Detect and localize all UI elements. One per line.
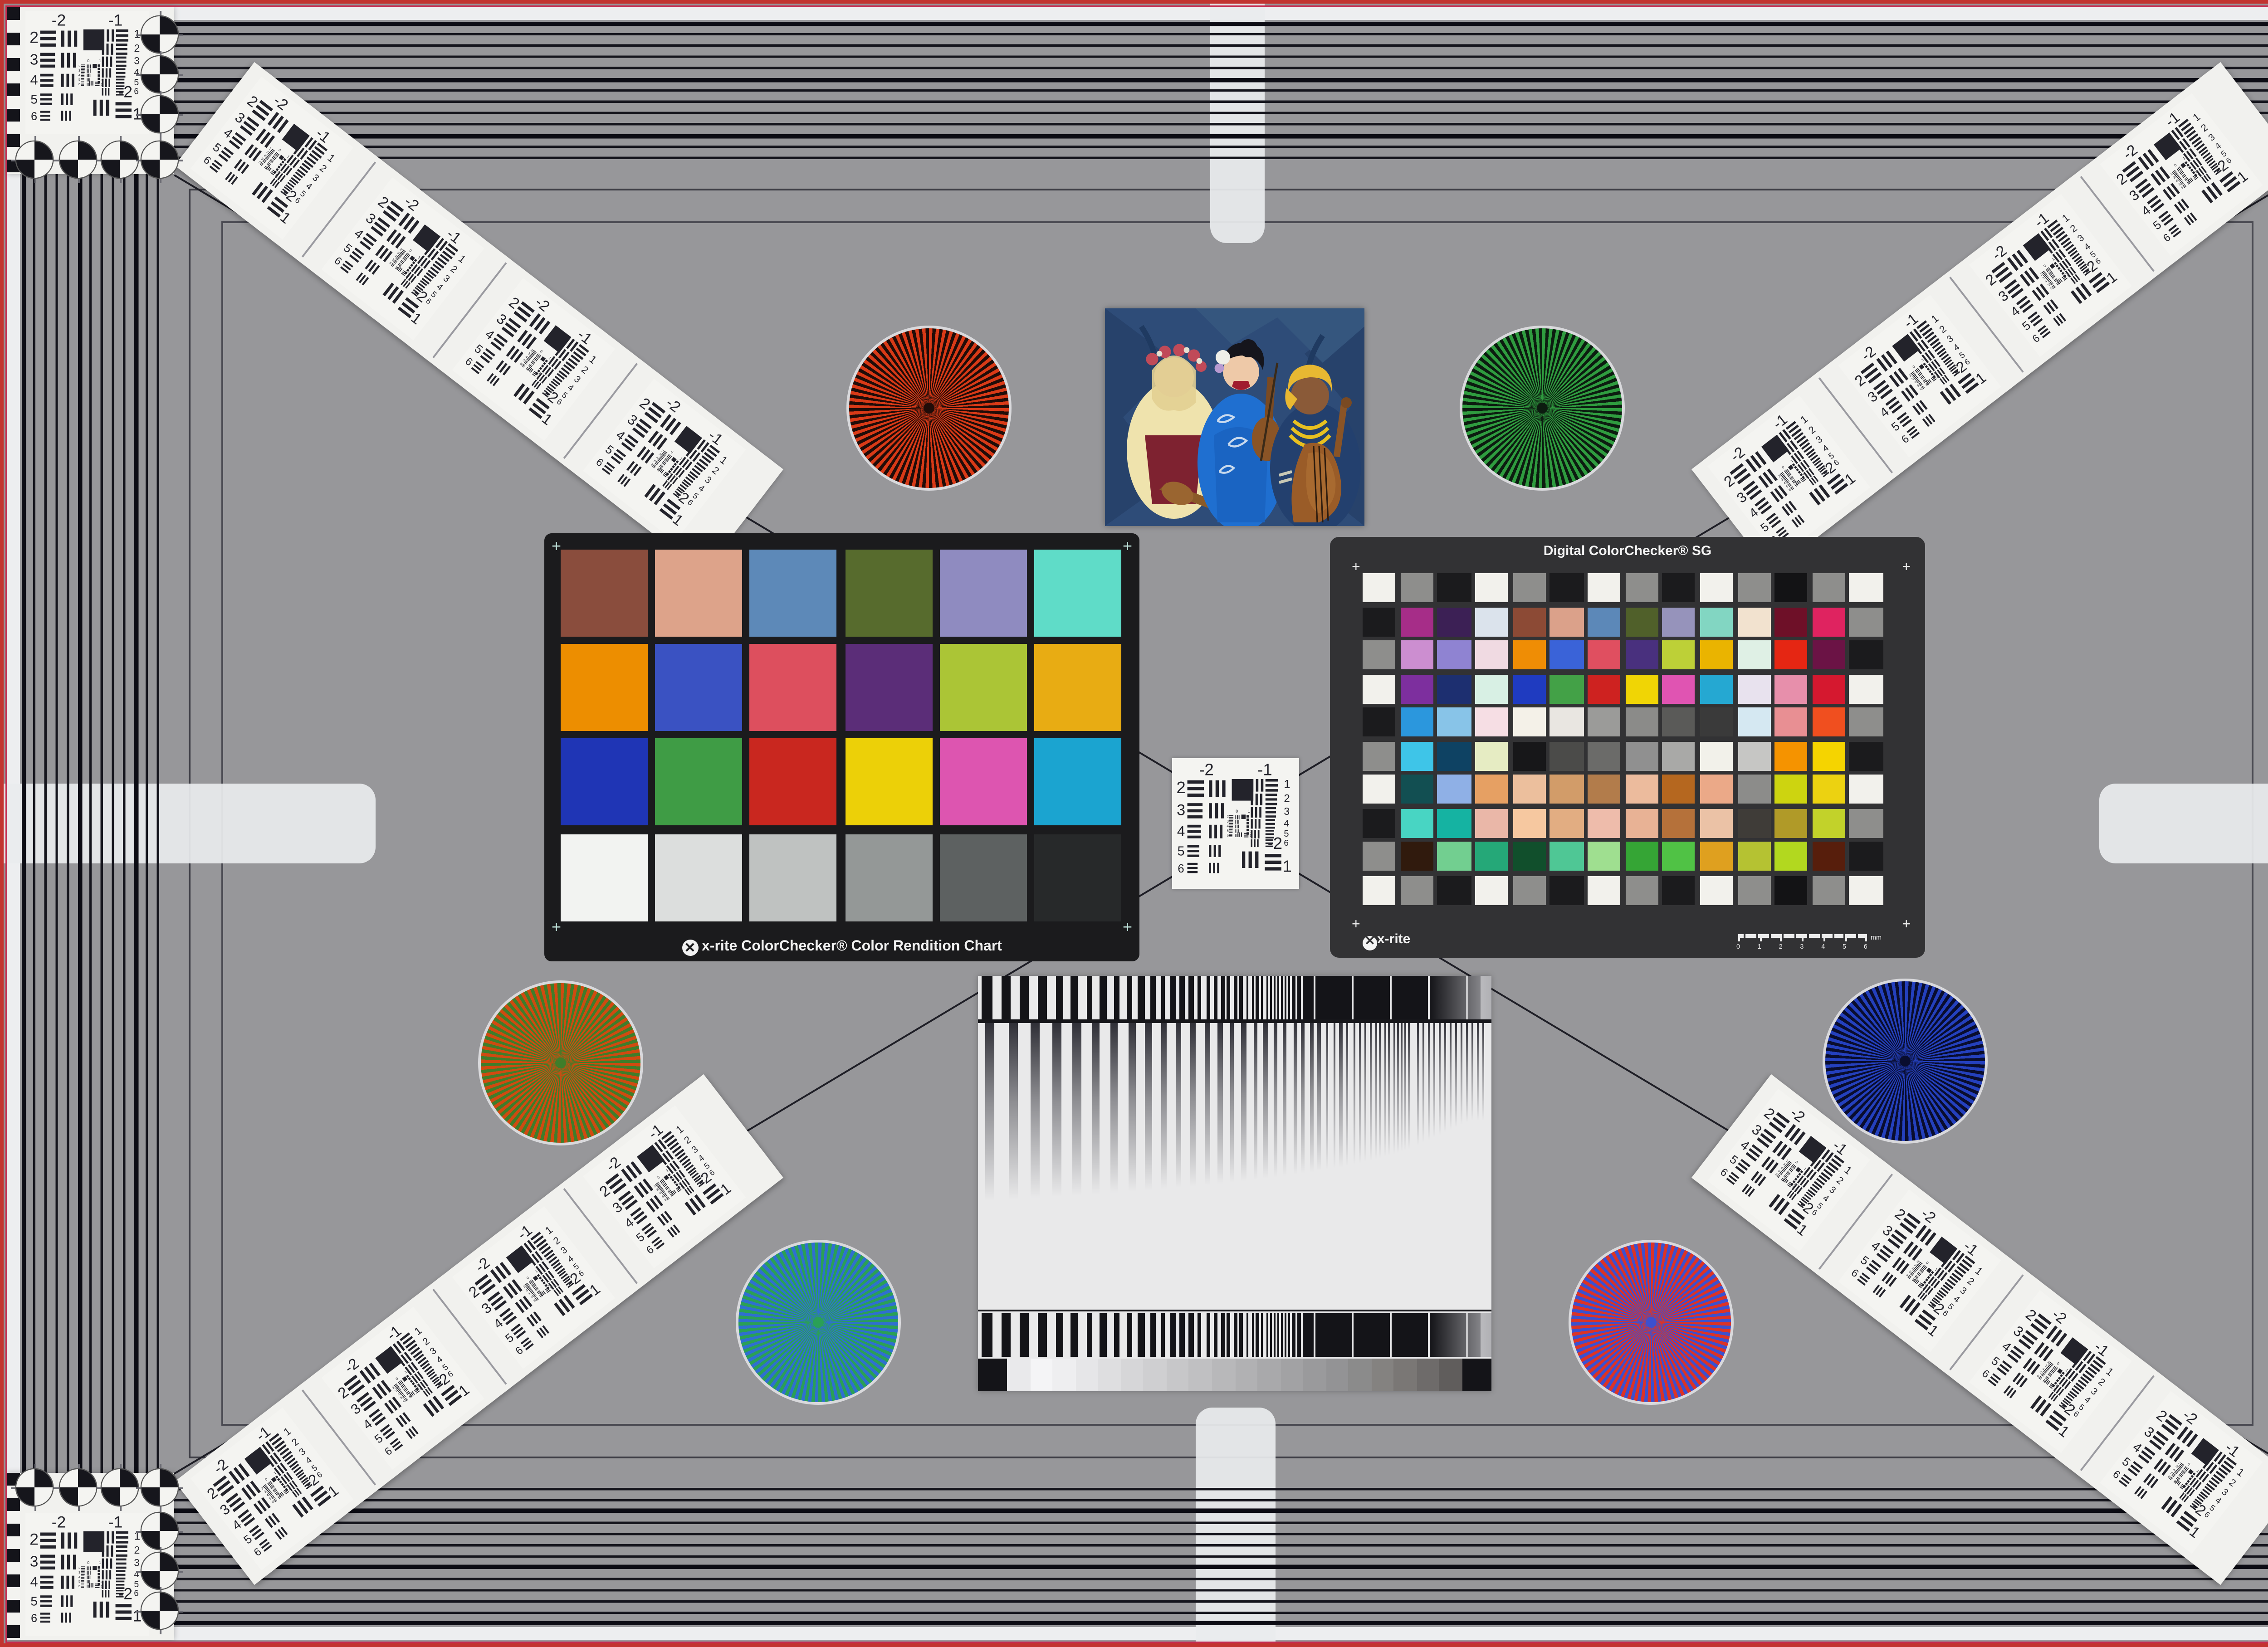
svg-text:3: 3 <box>30 51 38 68</box>
sweep-bar <box>1397 1313 1398 1357</box>
colorchecker-patch <box>845 550 932 637</box>
svg-text:0: 0 <box>1925 1261 1929 1265</box>
svg-text:2: 2 <box>682 1134 693 1146</box>
sg-patch <box>1588 707 1621 737</box>
sg-patch <box>1475 674 1508 703</box>
sweep-bar <box>1368 976 1369 1019</box>
sweep-bar <box>1393 976 1394 1019</box>
sweep-bar <box>1356 1313 1358 1357</box>
sweep-bar <box>1379 976 1381 1019</box>
sweep-bar <box>1126 976 1132 1019</box>
svg-text:1: 1 <box>456 252 468 265</box>
svg-text:3: 3 <box>703 474 714 486</box>
ruler-tick <box>1783 934 1784 939</box>
sweep-bar <box>1318 976 1320 1019</box>
trumpet-line <box>1009 1023 1018 1310</box>
sweep-bar <box>1309 1313 1310 1357</box>
sweep-bar <box>1375 976 1377 1019</box>
colorchecker-patch <box>939 739 1026 826</box>
svg-text:-2: -2 <box>2049 1306 2070 1327</box>
trumpet-line <box>1434 1023 1435 1310</box>
center-usaf-target: -2-123456123456-21012345601 <box>1172 758 1299 889</box>
trumpet-line <box>1442 1023 1443 1310</box>
ruler-tick <box>1836 934 1837 939</box>
sweep-bar <box>1086 976 1093 1019</box>
svg-text:6: 6 <box>1718 1166 1730 1179</box>
sg-patch <box>1363 707 1396 737</box>
sg-patch <box>1475 875 1508 905</box>
sweep-bar <box>1315 1313 1316 1357</box>
sweep-bar <box>1180 1313 1185 1357</box>
ruler-tick <box>1794 934 1794 939</box>
sweep-bar <box>1240 976 1243 1019</box>
trumpet-line <box>1274 1023 1278 1310</box>
edge-checker-strip <box>7 7 20 174</box>
sweep-bar <box>1038 1313 1047 1357</box>
sweep-bar <box>1171 976 1176 1019</box>
svg-text:6: 6 <box>1919 387 1922 391</box>
svg-text:-1: -1 <box>313 125 333 146</box>
colorchecker-patch <box>561 644 648 731</box>
ruler-tick <box>1861 934 1862 939</box>
ruler-tick <box>1844 934 1845 941</box>
svg-text:2: 2 <box>551 1234 562 1247</box>
sweep-bar <box>1305 1313 1306 1357</box>
sg-patch <box>1700 707 1733 737</box>
sweep-bar <box>1349 976 1350 1019</box>
svg-text:6: 6 <box>1774 1173 1778 1177</box>
trumpet-line <box>1472 1023 1473 1310</box>
svg-text:0: 0 <box>1236 809 1238 814</box>
colorchecker-patch <box>655 833 743 921</box>
trumpet-line <box>1437 1023 1438 1310</box>
sg-patch <box>1850 775 1883 804</box>
ruler-tick <box>1749 934 1750 939</box>
svg-text:5: 5 <box>1227 828 1229 833</box>
edge-checker-strip <box>7 1473 20 1640</box>
svg-text:-1: -1 <box>2091 1339 2112 1360</box>
fiducial-quadrant-circle <box>142 1513 178 1549</box>
ruler-unit: mm <box>1871 934 1882 941</box>
svg-text:4: 4 <box>78 73 81 77</box>
svg-text:6: 6 <box>1227 833 1229 838</box>
sg-patch <box>1512 875 1545 905</box>
ruler-tick <box>1823 934 1824 941</box>
ruler-tick <box>1806 934 1807 939</box>
svg-text:3: 3 <box>310 172 321 184</box>
svg-text:2: 2 <box>134 42 140 54</box>
svg-text:1: 1 <box>1283 857 1292 875</box>
trumpet-line <box>1414 1023 1416 1310</box>
sg-patch <box>1550 674 1583 703</box>
sweep-bar <box>1356 976 1358 1019</box>
svg-text:1: 1 <box>1798 413 1810 426</box>
right-center-bar <box>2099 784 2268 863</box>
trumpet-line <box>1161 1023 1167 1310</box>
svg-text:-1: -1 <box>705 427 726 448</box>
svg-text:3: 3 <box>30 1553 38 1570</box>
sweep-bar <box>1385 1313 1386 1357</box>
svg-text:4: 4 <box>134 67 139 78</box>
sweep-bar <box>1354 976 1356 1019</box>
svg-text:2: 2 <box>1834 1174 1846 1187</box>
sweep-bar <box>1270 976 1272 1019</box>
svg-text:5: 5 <box>2019 318 2033 333</box>
sweep-bar <box>1335 1313 1337 1357</box>
sweep-bar <box>1416 976 1417 1019</box>
sg-patch <box>1625 607 1658 636</box>
ruler-tick <box>1760 934 1760 941</box>
sg-patch <box>1437 707 1471 737</box>
sg-patch <box>1512 607 1545 636</box>
svg-text:2: 2 <box>449 263 460 275</box>
sweep-bar <box>1086 1313 1093 1357</box>
sweep-bar <box>1408 976 1409 1019</box>
sweep-bar <box>1305 976 1306 1019</box>
svg-text:-2: -2 <box>342 1355 362 1376</box>
svg-text:1: 1 <box>281 1425 293 1438</box>
svg-text:2: 2 <box>318 162 329 175</box>
svg-text:1: 1 <box>1248 809 1250 814</box>
svg-text:4: 4 <box>491 1316 506 1332</box>
sg-patch <box>1363 573 1396 603</box>
sweep-bar <box>1160 1313 1165 1357</box>
corner-usaf-target: -2-123456123456-21012345601 <box>25 1513 149 1636</box>
sweep-bar <box>1375 1313 1377 1357</box>
svg-text:2: 2 <box>78 64 80 68</box>
svg-text:6: 6 <box>78 1584 80 1588</box>
svg-text:3: 3 <box>1958 1285 1969 1296</box>
sweep-bar <box>1378 1313 1379 1357</box>
ruler-tick <box>1851 934 1852 939</box>
sweep-bar <box>1274 1313 1276 1357</box>
sweep-bar <box>1359 1313 1360 1357</box>
sweep-bar <box>1002 1313 1011 1357</box>
ruler-number: 5 <box>1843 943 1846 950</box>
grayscale-step <box>1280 1359 1303 1391</box>
sg-patch <box>1700 775 1733 804</box>
sg-patch <box>1737 707 1770 737</box>
siemens-star-green-black <box>1462 328 1622 488</box>
sg-patch <box>1475 640 1508 670</box>
sweep-bar <box>1278 1313 1280 1357</box>
sg-patch <box>1737 640 1770 670</box>
sweep-bar <box>1320 1313 1322 1357</box>
svg-text:3: 3 <box>1227 819 1229 823</box>
ruler-tick <box>1770 934 1771 939</box>
svg-text:4: 4 <box>1177 823 1185 839</box>
sg-patch <box>1662 573 1696 603</box>
sweep-bar <box>1150 1313 1155 1357</box>
sweep-bar <box>1021 976 1030 1019</box>
sg-patch <box>1812 674 1845 703</box>
sweep-bar <box>1368 1313 1369 1357</box>
svg-text:1: 1 <box>587 353 599 366</box>
colorchecker-patch <box>1034 833 1121 921</box>
sg-patch <box>1363 875 1396 905</box>
sg-patch <box>1775 640 1808 670</box>
sweep-bar <box>1389 1313 1390 1357</box>
svg-text:3: 3 <box>479 1300 494 1317</box>
svg-text:5: 5 <box>2120 1454 2133 1469</box>
svg-text:0: 0 <box>2056 1361 2060 1366</box>
grayscale-step <box>1235 1359 1258 1391</box>
sweep-bar <box>1421 976 1422 1019</box>
svg-text:-1: -1 <box>108 12 122 29</box>
sg-patch <box>1363 842 1396 871</box>
sweep-bar <box>1417 1313 1419 1357</box>
svg-text:2: 2 <box>420 1335 431 1347</box>
grayscale-step <box>1303 1359 1326 1391</box>
svg-text:6: 6 <box>1788 488 1792 492</box>
sg-patch <box>1550 842 1583 871</box>
sg-patch <box>1737 607 1770 636</box>
sweep-bar <box>1227 1313 1231 1357</box>
sweep-bar <box>1394 1313 1396 1357</box>
sweep-bar <box>1328 976 1329 1019</box>
svg-text:2: 2 <box>710 464 721 477</box>
svg-text:5: 5 <box>603 442 616 457</box>
sweep-bar <box>1391 976 1392 1019</box>
colorchecker-patch <box>1034 550 1121 637</box>
svg-text:-2: -2 <box>663 395 684 416</box>
svg-text:-1: -1 <box>1257 760 1272 779</box>
trumpet-line <box>1428 1023 1430 1310</box>
trumpet-line <box>1242 1023 1246 1310</box>
sweep-bar <box>1171 1313 1176 1357</box>
svg-text:3: 3 <box>78 1570 80 1574</box>
ruler-tick <box>1742 934 1743 939</box>
sweep-bar <box>1417 976 1419 1019</box>
sweep-bar <box>1391 1313 1392 1357</box>
sweep-bar <box>1297 1313 1299 1357</box>
sweep-bar <box>1425 1313 1427 1357</box>
svg-text:6: 6 <box>258 161 261 165</box>
svg-text:1: 1 <box>1842 1164 1854 1176</box>
sweep-bar <box>1335 976 1337 1019</box>
ruler-tick <box>1791 934 1792 939</box>
sweep-bar <box>1180 976 1185 1019</box>
ruler-tick <box>1866 934 1867 941</box>
svg-text:1: 1 <box>1794 1221 1810 1239</box>
sweep-bar <box>1419 1313 1421 1357</box>
ruler-tick <box>1842 934 1843 939</box>
sg-patch <box>1850 842 1883 871</box>
trumpet-line <box>1364 1023 1367 1310</box>
svg-text:6: 6 <box>31 1612 37 1625</box>
siemens-star-red-blue <box>1571 1243 1731 1402</box>
sg-patch <box>1363 775 1396 804</box>
colorchecker-patch <box>939 833 1026 921</box>
svg-text:5: 5 <box>1758 520 1771 535</box>
svg-text:2: 2 <box>204 1484 221 1503</box>
sweep-bar <box>1351 976 1352 1019</box>
sweep-bar <box>1302 1313 1304 1357</box>
svg-text:1: 1 <box>134 1530 140 1543</box>
sweep-bar <box>1206 976 1209 1019</box>
trumpet-line <box>1375 1023 1377 1310</box>
trumpet-line <box>1340 1023 1343 1310</box>
grayscale-step <box>1257 1359 1281 1391</box>
sg-patch <box>1588 640 1621 670</box>
sg-patch <box>1812 808 1845 838</box>
svg-text:-1: -1 <box>2222 1439 2243 1461</box>
registration-plus-icon: + <box>1352 920 1360 929</box>
svg-text:5: 5 <box>472 341 485 356</box>
sweep-bar <box>1370 976 1371 1019</box>
trumpet-line <box>1450 1023 1452 1310</box>
svg-text:-2: -2 <box>118 83 132 101</box>
trumpet-line <box>1453 1023 1454 1310</box>
svg-text:4: 4 <box>1877 404 1892 420</box>
sg-patch <box>1775 808 1808 838</box>
ruler-number: 2 <box>1779 943 1783 950</box>
sweep-bar <box>1100 1313 1107 1357</box>
ruler-tick <box>1779 934 1779 939</box>
colorchecker-patch <box>750 739 837 826</box>
fiducial-quadrant-circle <box>142 1553 178 1589</box>
svg-text:3: 3 <box>1865 388 1881 405</box>
trumpet-line <box>1475 1023 1476 1310</box>
trumpet-line <box>1145 1023 1151 1310</box>
ruler-number: 4 <box>1821 943 1825 950</box>
trumpet-line <box>1318 1023 1321 1310</box>
grayscale-step <box>1007 1359 1030 1391</box>
ruler-tick <box>1764 934 1765 939</box>
sweep-bar <box>1291 1313 1293 1357</box>
sweep-bar <box>1374 1313 1375 1357</box>
colorchecker-patch <box>750 833 837 921</box>
sg-patch <box>1625 875 1658 905</box>
svg-text:5: 5 <box>241 1532 254 1547</box>
trumpet-line <box>985 1023 995 1310</box>
svg-text:6: 6 <box>519 362 523 366</box>
svg-text:4: 4 <box>1227 824 1229 828</box>
sweep-bar <box>1316 1313 1318 1357</box>
registration-plus-icon: + <box>552 921 561 932</box>
grayscale-step <box>1417 1359 1440 1391</box>
trumpet-line <box>1456 1023 1457 1310</box>
colorchecker-patch <box>750 644 837 731</box>
fiducial-quadrant-circle <box>142 56 178 93</box>
svg-text:3: 3 <box>441 273 452 284</box>
ruler-tick <box>1747 934 1748 939</box>
svg-text:5: 5 <box>1858 1253 1872 1268</box>
svg-text:-2: -2 <box>472 1254 493 1276</box>
sweep-bar <box>1412 976 1413 1019</box>
sweep-bar <box>1002 976 1011 1019</box>
sweep-blur-overlay <box>1430 976 1491 1019</box>
svg-text:0: 0 <box>2043 263 2047 268</box>
sweep-bar <box>1071 1313 1079 1357</box>
sweep-bar <box>1291 976 1293 1019</box>
fiducial-quadrant-circle <box>102 1469 138 1506</box>
svg-text:-2: -2 <box>270 93 291 114</box>
sweep-bar <box>1412 1313 1413 1357</box>
svg-text:2: 2 <box>1806 424 1818 436</box>
sweep-bar <box>1021 1313 1030 1357</box>
sg-patch <box>1400 707 1433 737</box>
sg-patch <box>1588 875 1621 905</box>
ruler-tick <box>1853 934 1854 939</box>
sg-patch <box>1662 607 1696 636</box>
sweep-bar <box>1406 976 1408 1019</box>
sweep-bar <box>1324 1313 1325 1357</box>
svg-text:5: 5 <box>634 1230 647 1245</box>
sweep-bar <box>1360 1313 1362 1357</box>
sg-patch <box>1437 875 1471 905</box>
sweep-bar <box>1100 976 1107 1019</box>
svg-text:3: 3 <box>1284 805 1290 817</box>
sweep-bar <box>1274 976 1276 1019</box>
sweep-bar <box>1285 976 1287 1019</box>
svg-text:5: 5 <box>1178 844 1185 859</box>
sweep-bar <box>982 976 992 1019</box>
test-chart-scene: -2-123456123456-21012345601 -2-123456123… <box>0 0 2268 1647</box>
svg-text:1: 1 <box>2186 1523 2203 1542</box>
sg-patch <box>1437 573 1471 603</box>
sweep-bar <box>1330 976 1331 1019</box>
svg-text:2: 2 <box>1937 323 1948 335</box>
sweep-bar <box>1300 976 1301 1019</box>
svg-text:6: 6 <box>1284 838 1289 848</box>
svg-text:0: 0 <box>87 58 89 63</box>
ruler-tick <box>1757 934 1758 939</box>
border-stripes-bottom <box>167 1484 2268 1625</box>
sweep-bar <box>1150 976 1155 1019</box>
sweep-bar <box>1256 976 1259 1019</box>
sweep-bar <box>1038 976 1047 1019</box>
star-center-dot <box>1900 1056 1911 1067</box>
svg-text:5: 5 <box>1727 1152 1741 1167</box>
ruler-tick <box>1840 934 1841 939</box>
star-center-dot <box>813 1317 824 1328</box>
sg-patch <box>1400 607 1433 636</box>
fiducial-quadrant-circle <box>142 141 178 178</box>
sweep-bar <box>1362 976 1364 1019</box>
sweep-bar <box>1398 1313 1400 1357</box>
sweep-bar <box>1410 976 1411 1019</box>
trumpet-line <box>1431 1023 1432 1310</box>
sweep-bar <box>1387 976 1388 1019</box>
sg-patch <box>1625 775 1658 804</box>
ruler-tick <box>1810 934 1811 939</box>
grayscale-step <box>1166 1359 1189 1391</box>
svg-text:4: 4 <box>78 1575 81 1579</box>
sweep-bar <box>1266 976 1268 1019</box>
sg-patch <box>1700 842 1733 871</box>
siemens-star-red-green <box>481 983 640 1143</box>
svg-text:1: 1 <box>412 1325 424 1337</box>
siemens-star-blue-green <box>738 1243 898 1402</box>
trumpet-line <box>1073 1023 1080 1310</box>
colorchecker-24-chart: + + + + ✕x-rite ColorChecker® Color Rend… <box>544 533 1139 961</box>
svg-text:1: 1 <box>1925 1322 1941 1340</box>
sg-patch <box>1737 875 1770 905</box>
bottom-resolution-chart <box>978 976 1491 1391</box>
ruler-tick <box>1829 934 1830 939</box>
sweep-bar <box>1213 976 1217 1019</box>
sg-patch <box>1812 707 1845 737</box>
svg-text:0: 0 <box>2187 1462 2191 1467</box>
fiducial-quadrant-circle <box>102 141 138 178</box>
ruler-number: 1 <box>1758 943 1761 950</box>
svg-text:6: 6 <box>134 87 138 96</box>
sweep-bar <box>1278 976 1280 1019</box>
grayscale-step <box>1144 1359 1167 1391</box>
sg-patch <box>1550 875 1583 905</box>
svg-text:-2: -2 <box>2120 141 2141 163</box>
